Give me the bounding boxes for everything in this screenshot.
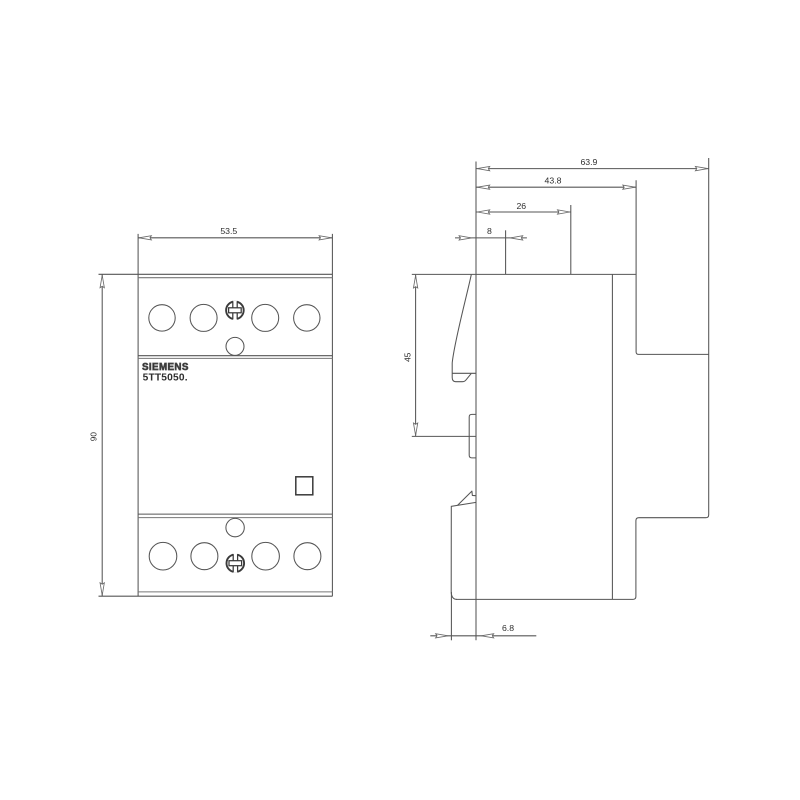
svg-text:8: 8 — [487, 226, 492, 236]
svg-text:90: 90 — [89, 432, 99, 442]
svg-text:63.9: 63.9 — [580, 157, 597, 167]
svg-text:43.8: 43.8 — [545, 175, 562, 185]
svg-text:SIEMENS: SIEMENS — [142, 362, 189, 373]
svg-text:45: 45 — [403, 352, 413, 362]
svg-text:5TT5050.: 5TT5050. — [143, 373, 188, 384]
svg-text:6.8: 6.8 — [502, 623, 514, 633]
svg-text:53.5: 53.5 — [220, 226, 237, 236]
svg-text:26: 26 — [516, 201, 526, 211]
